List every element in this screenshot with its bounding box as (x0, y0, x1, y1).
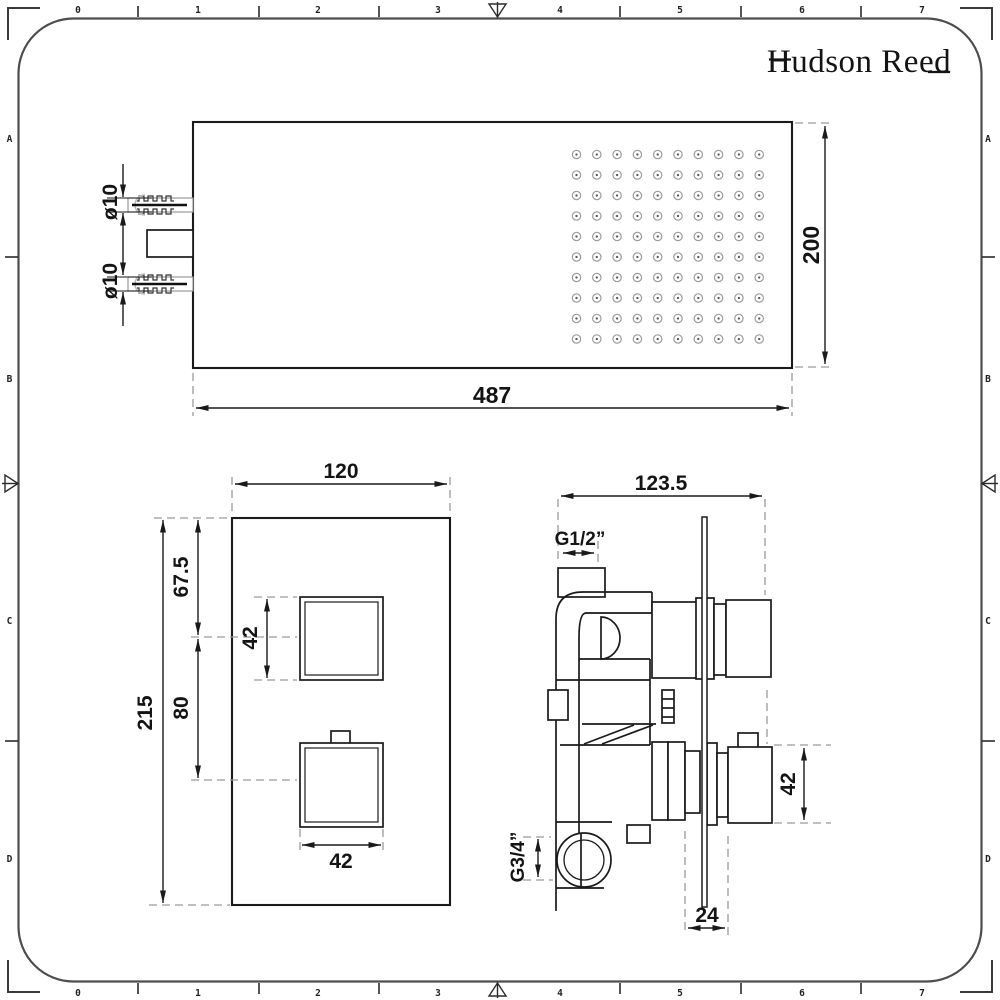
wall-plate (702, 517, 707, 907)
ruler-number: 1 (195, 988, 201, 999)
row-letter: C (985, 616, 991, 627)
ruler-number: 2 (315, 5, 321, 16)
valve-handle-bottom (300, 731, 383, 827)
valve-handle-top (300, 597, 383, 680)
left-ruler: A B C D (2, 134, 18, 865)
dim-shower-depth: 200 (795, 123, 831, 367)
row-letter: B (7, 374, 13, 385)
center-mark-top (489, 2, 506, 17)
dim-valve-top-offset-label: 67.5 (170, 556, 193, 597)
dim-valve-width-label: 120 (323, 460, 358, 483)
ruler-number: 5 (677, 5, 683, 16)
row-letter: A (7, 134, 13, 145)
dim-inlet-top-label: ø10 (99, 184, 122, 220)
center-mark-bottom (489, 983, 506, 998)
dim-shower-width: 487 (193, 373, 792, 416)
ruler-number: 2 (315, 988, 321, 999)
dim-shower-depth-label: 200 (798, 226, 824, 264)
ruler-number: 6 (799, 988, 805, 999)
dim-valve-height-label: 215 (134, 695, 157, 730)
ruler-number: 6 (799, 5, 805, 16)
ruler-number: 5 (677, 988, 683, 999)
ruler-number: 3 (435, 988, 441, 999)
dim-inlet-top: ø10 (99, 164, 152, 275)
dim-side-knob-height: 42 (774, 745, 831, 823)
row-letter: D (7, 854, 13, 865)
dim-valve-handle-spacing-label: 80 (170, 696, 193, 719)
brand-logo: Hudson Reed (767, 44, 951, 80)
ruler-number: 7 (919, 5, 925, 16)
valve-front-view: 120 67.5 80 215 42 (134, 460, 450, 905)
top-ruler: 0 1 2 3 4 5 6 7 (75, 2, 925, 17)
dim-plate-depth-label: 24 (695, 904, 719, 927)
ruler-number: 4 (557, 988, 563, 999)
dim-shower-width-label: 487 (473, 382, 511, 408)
dim-outlet-thread: G3/4” (508, 832, 553, 883)
ruler-number: 0 (75, 988, 81, 999)
center-mark-left (2, 475, 18, 492)
valve-cartridge-bottom (652, 733, 772, 825)
row-letter: A (985, 134, 991, 145)
ruler-number: 7 (919, 988, 925, 999)
side-knob-top (726, 600, 771, 677)
ruler-number: 0 (75, 5, 81, 16)
outlet-pipe-circle (557, 833, 611, 887)
dim-inlet-thread-label: G1/2” (555, 529, 606, 550)
ruler-number: 1 (195, 5, 201, 16)
dim-valve-depth-label: 123.5 (635, 472, 688, 495)
dim-handle-height-label: 42 (239, 626, 262, 649)
dim-inlet-bottom-label: ø10 (99, 263, 122, 299)
technical-drawing: 0 1 2 3 4 5 6 7 0 1 2 3 4 5 (0, 0, 1000, 1000)
dim-inlet-thread: G1/2” (555, 529, 606, 566)
bottom-ruler: 0 1 2 3 4 5 6 7 (75, 983, 925, 999)
ruler-number: 3 (435, 5, 441, 16)
row-letter: B (985, 374, 991, 385)
dim-outlet-thread-label: G3/4” (508, 832, 529, 883)
valve-cartridge-top (652, 598, 771, 679)
shower-head-view: ø10 ø10 487 200 (99, 122, 831, 416)
side-knob-bottom (728, 747, 772, 823)
inlet-middle-tab (147, 230, 193, 257)
center-mark-right (982, 475, 998, 492)
valve-plate-outline (232, 518, 450, 905)
ruler-number: 4 (557, 5, 563, 16)
shower-head-outline (193, 122, 792, 368)
brand-logo-text: Hudson Reed (767, 44, 951, 80)
dim-handle-width-label: 42 (329, 850, 352, 873)
dim-side-knob-height-label: 42 (777, 772, 800, 795)
row-letter: C (7, 616, 13, 627)
dim-valve-width: 120 (232, 460, 450, 516)
right-ruler: A B C D (982, 134, 998, 865)
valve-side-view: 123.5 G1/2” G3/4” 42 24 (508, 472, 831, 935)
row-letter: D (985, 854, 991, 865)
technical-drawing-page: 0 1 2 3 4 5 6 7 0 1 2 3 4 5 (0, 0, 1000, 1000)
